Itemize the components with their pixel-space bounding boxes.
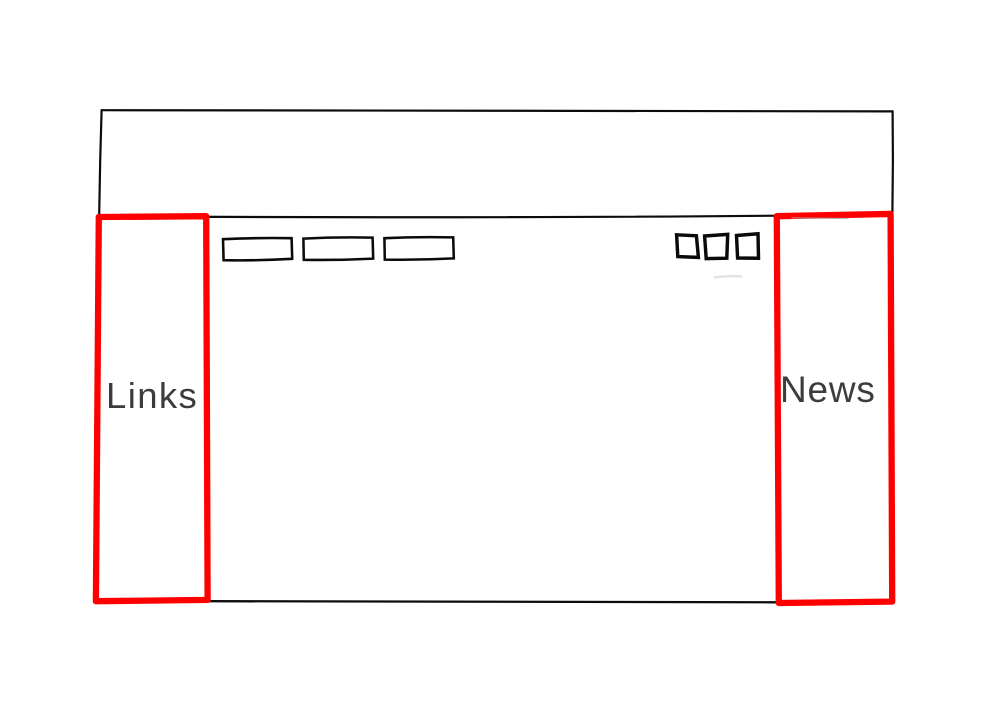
svg-text:Links: Links (106, 375, 198, 416)
svg-text:News: News (780, 369, 876, 410)
